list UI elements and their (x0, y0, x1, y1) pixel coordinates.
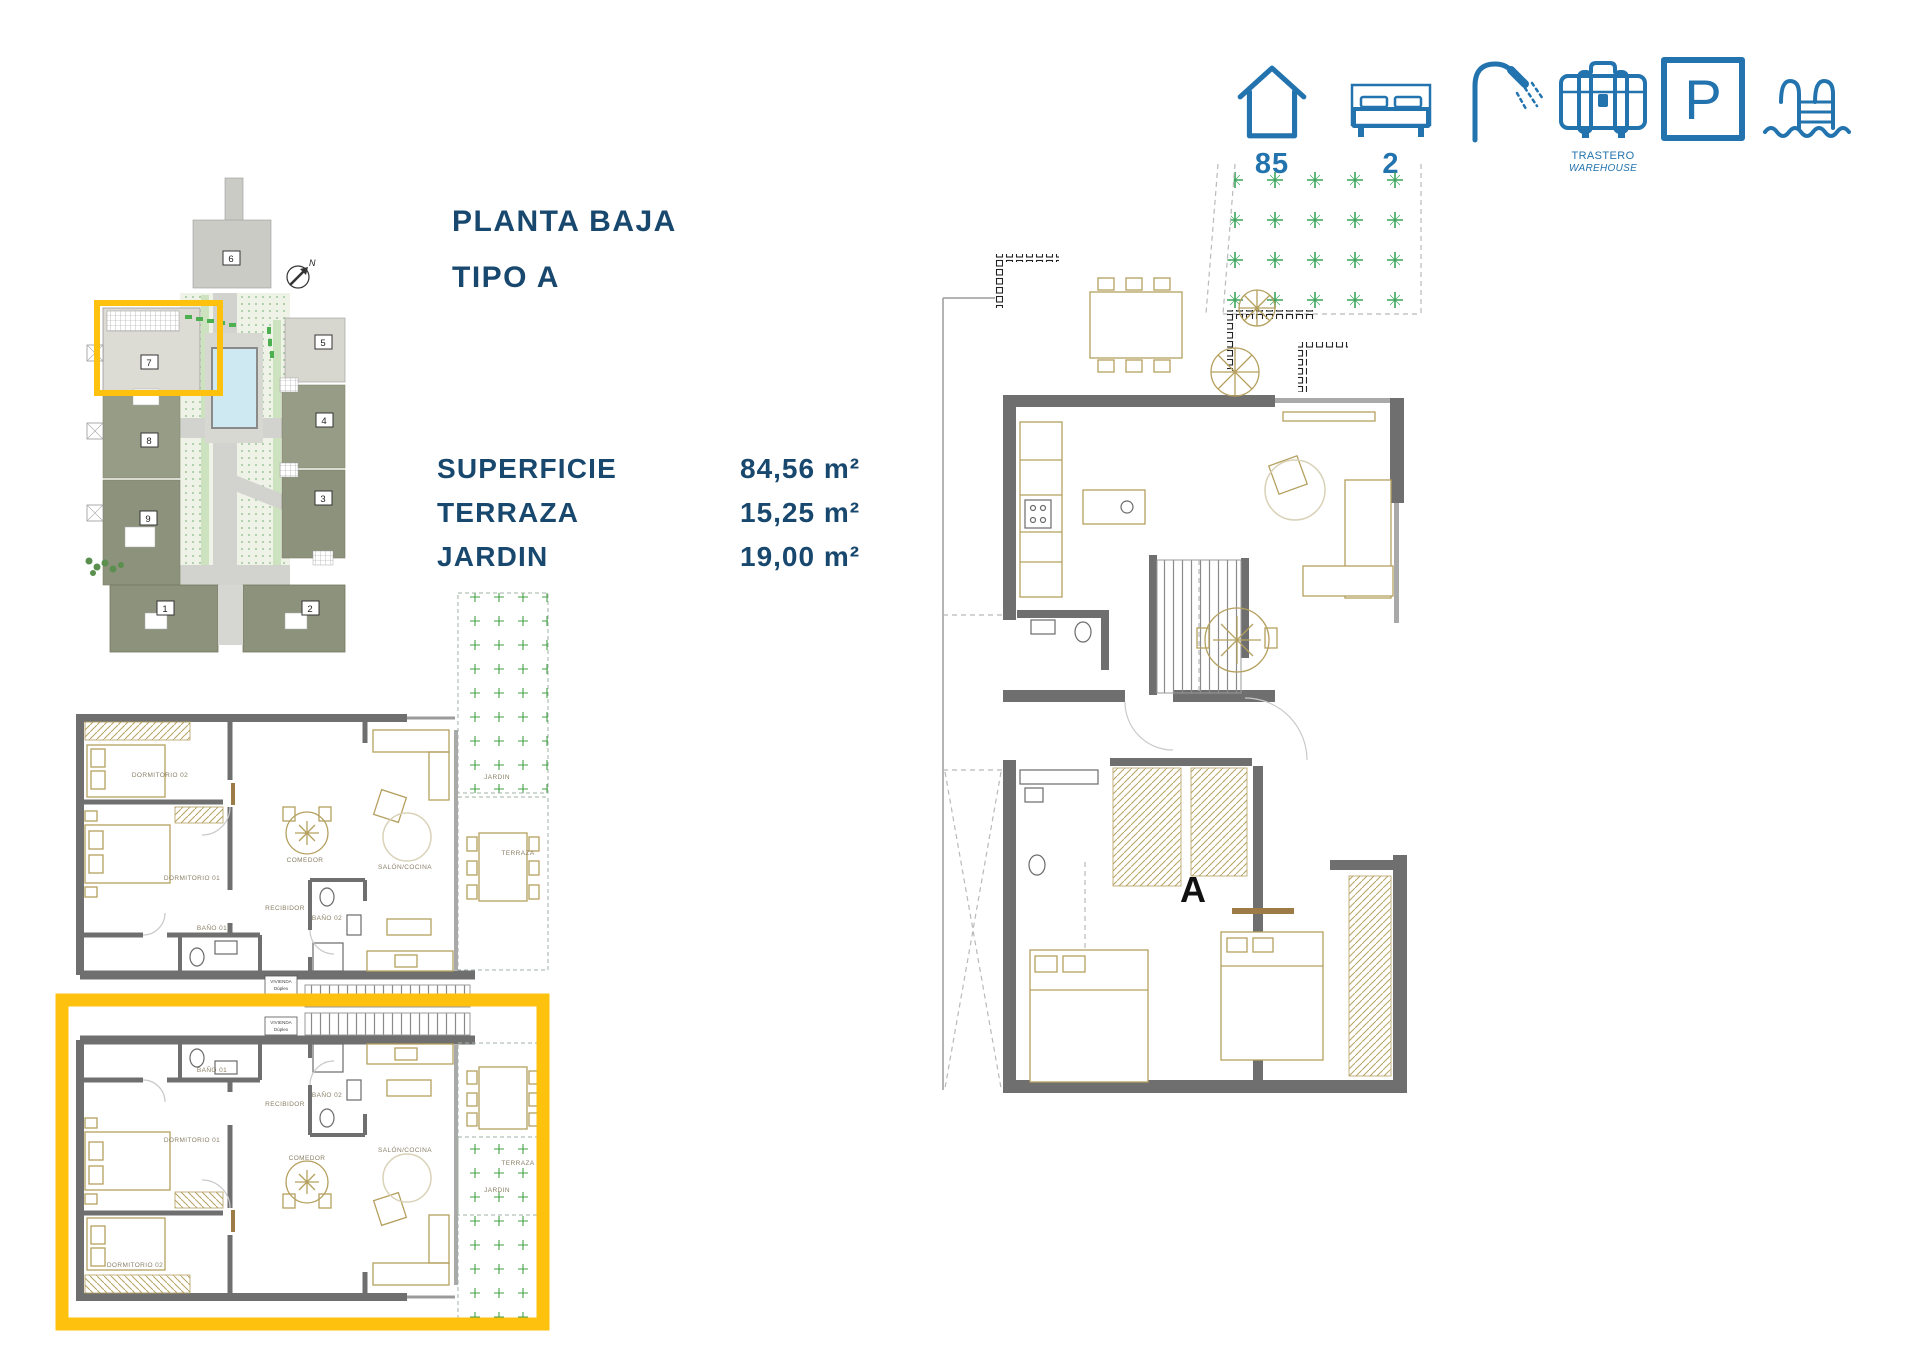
bed-icon (1346, 50, 1436, 142)
svg-text:SALÓN/COCINA: SALÓN/COCINA (378, 1145, 432, 1154)
icon-item-bathrooms (1460, 50, 1550, 162)
warehouse-label: WAREHOUSE (1551, 163, 1655, 174)
surface-specs: SUPERFICIE 84,56 m² TERRAZA 15,25 m² JAR… (437, 447, 860, 579)
icon-item-parking: P (1660, 50, 1746, 142)
spec-value: 19,00 m² (740, 541, 860, 573)
unit-label-8: 8 (146, 436, 151, 447)
page-subtitle: TIPO A (452, 261, 677, 295)
bedroom-2 (1221, 932, 1323, 1060)
svg-text:BAÑO 01: BAÑO 01 (197, 923, 227, 932)
bathroom-1 (1031, 620, 1091, 642)
north-label: N (309, 258, 316, 268)
unit-upper (80, 718, 475, 975)
terraza-table-upper (467, 833, 539, 901)
unit-label-7: 7 (146, 358, 151, 369)
plan-title: PLANTA BAJA TIPO A (452, 205, 677, 295)
closet-1 (1113, 768, 1181, 886)
spec-value: 84,56 m² (740, 453, 860, 485)
svg-text:VIVIENDA: VIVIENDA (270, 979, 292, 984)
svg-text:VIVIENDA: VIVIENDA (270, 1020, 292, 1025)
bathroom-2 (1020, 770, 1098, 875)
vivienda-tag-upper: VIVIENDA Dúplex (265, 976, 297, 994)
parking-icon: P (1660, 50, 1746, 142)
svg-text:DORMITORIO 01: DORMITORIO 01 (164, 1137, 220, 1144)
svg-text:SALÓN/COCINA: SALÓN/COCINA (378, 862, 432, 871)
terrace-dining (1090, 278, 1182, 372)
room-labels-upper: DORMITORIO 02 DORMITORIO 01 BAÑO 01 RECI… (132, 772, 535, 932)
building-4 (282, 385, 345, 468)
parking-letter: P (1684, 68, 1721, 131)
closet-2 (1191, 768, 1247, 876)
svg-text:BAÑO 01: BAÑO 01 (197, 1065, 227, 1074)
svg-text:JARDIN: JARDIN (484, 774, 510, 781)
trastero-spacer (1460, 150, 1550, 162)
kitchen (1020, 422, 1145, 597)
section-label: A (1180, 869, 1206, 910)
door-leaf (1232, 908, 1294, 914)
terraza-upper (458, 797, 548, 970)
svg-text:DORMITORIO 02: DORMITORIO 02 (132, 772, 188, 779)
spec-label: TERRAZA (437, 497, 740, 529)
svg-text:RECIBIDOR: RECIBIDOR (265, 905, 305, 912)
svg-text:RECIBIDOR: RECIBIDOR (265, 1101, 305, 1108)
svg-text:COMEDOR: COMEDOR (287, 857, 324, 864)
stairs-lower (305, 1013, 470, 1035)
icon-item-trastero: TRASTERO WAREHOUSE (1551, 50, 1655, 174)
svg-text:BAÑO 02: BAÑO 02 (312, 1090, 342, 1099)
unit-label-6: 6 (228, 254, 233, 265)
svg-text:COMEDOR: COMEDOR (289, 1155, 326, 1162)
large-unit-plan: A (935, 160, 1427, 1100)
svg-text:BAÑO 02: BAÑO 02 (312, 913, 342, 922)
building-3 (282, 470, 345, 558)
unit-label-5: 5 (320, 338, 325, 349)
pool-icon (1762, 50, 1852, 142)
unit-label-9: 9 (145, 514, 150, 525)
terraza-table-lower (467, 1067, 539, 1129)
house-icon (1227, 50, 1317, 142)
north-arrow-icon: N (287, 258, 316, 288)
spec-value: 15,25 m² (740, 497, 860, 529)
bedroom-1 (1030, 950, 1148, 1082)
spec-row-terraza: TERRAZA 15,25 m² (437, 491, 860, 535)
living-room (1265, 412, 1393, 598)
svg-text:Dúplex: Dúplex (274, 1027, 289, 1032)
unit-label-3: 3 (320, 494, 325, 505)
spec-label: JARDIN (437, 541, 740, 573)
vivienda-tag-lower: VIVIENDA Dúplex (265, 1017, 297, 1035)
unit-lower (80, 1040, 475, 1297)
garden-area (1223, 164, 1421, 314)
building-5 (285, 318, 345, 382)
page-title: PLANTA BAJA (452, 205, 677, 239)
svg-text:JARDIN: JARDIN (484, 1187, 510, 1194)
wardrobe (1349, 876, 1391, 1076)
shower-icon (1460, 50, 1550, 142)
jardin-upper (458, 593, 548, 793)
spec-row-superficie: SUPERFICIE 84,56 m² (437, 447, 860, 491)
spec-label: SUPERFICIE (437, 453, 740, 485)
duplex-floor-plan: VIVIENDA Dúplex VIVIENDA Dúplex DORMITOR… (55, 585, 565, 1340)
icon-item-pool (1762, 50, 1852, 142)
warehouse-icon (1551, 50, 1655, 142)
unit-label-4: 4 (321, 416, 326, 427)
svg-text:TERRAZA: TERRAZA (501, 850, 534, 857)
spec-row-jardin: JARDIN 19,00 m² (437, 535, 860, 579)
svg-text:Dúplex: Dúplex (274, 986, 289, 991)
svg-text:DORMITORIO 02: DORMITORIO 02 (107, 1262, 163, 1269)
floorplan-sheet: 85 2 (0, 0, 1920, 1358)
svg-text:DORMITORIO 01: DORMITORIO 01 (164, 875, 220, 882)
trastero-label: TRASTERO (1551, 150, 1655, 162)
svg-text:TERRAZA: TERRAZA (501, 1160, 534, 1167)
